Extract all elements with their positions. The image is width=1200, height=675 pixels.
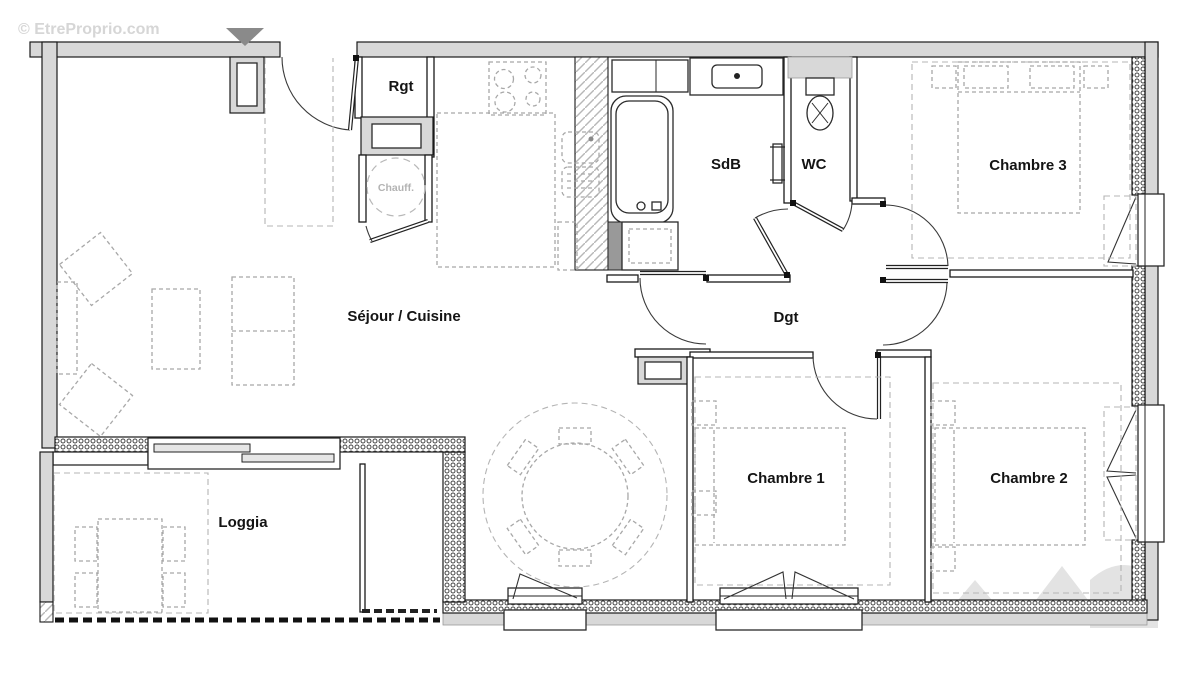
- stove: [489, 62, 546, 115]
- loggia-table: [98, 519, 162, 612]
- toilet-tank: [806, 78, 834, 95]
- loggia-furniture: [54, 473, 208, 613]
- chauff-left-wall: [359, 155, 366, 222]
- wc-right-wall: [850, 57, 857, 201]
- sejour-south-sill: [53, 452, 148, 465]
- kitchen-hall-door: [640, 273, 709, 344]
- bedroom1-window-sill: [716, 610, 862, 630]
- bedroom2-door: [880, 277, 948, 345]
- water-heater-door: [366, 221, 428, 241]
- wall-top-right: [357, 42, 1158, 57]
- label-sdb: SdB: [711, 156, 741, 173]
- sejour-window-sill: [504, 610, 586, 630]
- entry-zone: [265, 58, 333, 226]
- bedroom1-closet-inner: [645, 362, 681, 379]
- sliding-bay-window: [148, 438, 340, 469]
- bathtub-faucet: [637, 202, 645, 210]
- loggia-left-wall-end: [40, 602, 53, 622]
- bedroom2-furniture: [931, 383, 1121, 593]
- dgt-north-wall-left: [607, 275, 638, 282]
- label-dgt: Dgt: [774, 309, 799, 326]
- entry-coat-closet-inner: [237, 63, 257, 106]
- dining-set: [483, 403, 667, 587]
- wall-right-insulation-upper: [1132, 57, 1145, 195]
- label-bedroom1: Chambre 1: [747, 470, 825, 487]
- bedroom1-window: [716, 572, 862, 630]
- rgt-shelf-inner: [372, 124, 421, 148]
- bathroom-fixtures: [608, 58, 785, 270]
- fixtures: [367, 57, 852, 270]
- bathroom-door: [755, 209, 790, 278]
- wall-right-insulation-mid: [1132, 266, 1145, 406]
- label-chauff: Chauff.: [378, 182, 414, 194]
- label-sejour-cuisine: Séjour / Cuisine: [347, 308, 460, 325]
- armchair-1: [60, 233, 133, 306]
- bedroom2-window: [1104, 405, 1164, 542]
- console: [57, 282, 77, 374]
- loggia-left-wall: [40, 452, 53, 602]
- bedroom3-window: [1104, 194, 1164, 266]
- bedroom3-bedroom2-wall: [950, 270, 1133, 277]
- bedroom1-left-wall: [687, 357, 693, 602]
- label-wc: WC: [802, 156, 827, 173]
- armchair-2: [60, 364, 133, 437]
- dgt-north-wall-right: [707, 275, 790, 282]
- label-loggia: Loggia: [218, 514, 268, 531]
- floor-plan: © EtreProprio.com Rgt Chauff. SdB WC Cha…: [0, 0, 1200, 675]
- bed-3: [958, 62, 1080, 213]
- sdb-wc-wall: [784, 57, 791, 203]
- label-bedroom2: Chambre 2: [990, 470, 1068, 487]
- entrance-door: [282, 55, 359, 130]
- loggia-right-wall: [443, 452, 465, 602]
- loggia-partition: [360, 464, 365, 612]
- bedroom1-bedroom2-wall: [925, 357, 931, 602]
- watermark-text: © EtreProprio.com: [18, 21, 160, 38]
- bathroom-cabinet: [612, 60, 688, 92]
- dining-table: [522, 443, 628, 549]
- coffee-table: [152, 289, 200, 369]
- bedroom1-north-wall: [690, 352, 813, 358]
- interior-walls: [230, 57, 1133, 612]
- chauff-right-wall: [425, 155, 432, 222]
- wall-right-insulation-lower: [1132, 540, 1145, 602]
- wc-door: [790, 200, 852, 230]
- bedroom2-alcove-wall: [877, 350, 931, 357]
- wall-left: [42, 42, 57, 448]
- floor-plan-svg: © EtreProprio.com Rgt Chauff. SdB WC Cha…: [0, 0, 1200, 675]
- washer-panel: [608, 222, 622, 270]
- sejour-furniture: [57, 58, 333, 436]
- wall-top-left: [30, 42, 280, 57]
- towel-radiator: [770, 144, 785, 183]
- wc-fixtures: [788, 57, 852, 130]
- label-rgt: Rgt: [389, 78, 414, 95]
- bedroom3-door: [880, 201, 948, 267]
- label-bedroom3: Chambre 3: [989, 157, 1067, 174]
- bedroom1-door: [813, 352, 881, 419]
